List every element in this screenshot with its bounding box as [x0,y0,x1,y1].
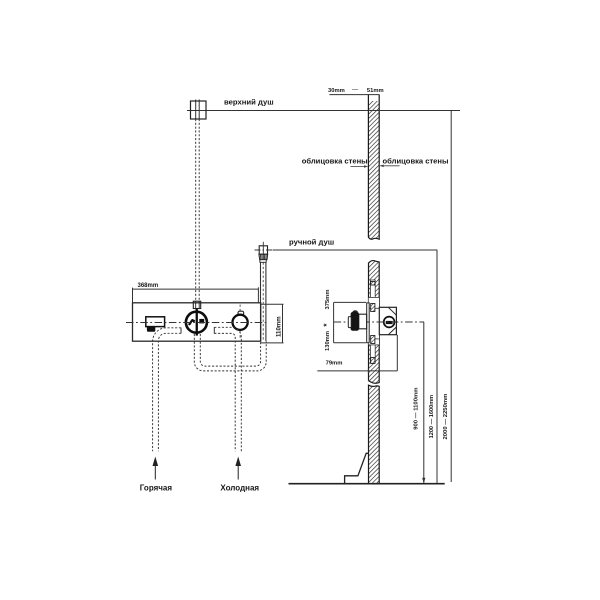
svg-text:130mm: 130mm [325,331,331,351]
svg-text:верхний душ: верхний душ [224,98,274,107]
svg-text:Холодная: Холодная [220,484,259,493]
svg-text:—: — [352,87,359,94]
svg-text:облицовка стены: облицовка стены [302,156,368,165]
svg-text:110mm: 110mm [276,316,283,337]
svg-text:1200 — 1600mm: 1200 — 1600mm [429,395,435,439]
svg-text:375mm: 375mm [325,290,331,310]
svg-text:облицовка стены: облицовка стены [383,156,449,165]
svg-text:900 — 1100mm: 900 — 1100mm [414,388,420,430]
svg-text:ручной душ: ручной душ [289,237,334,246]
svg-text:51mm: 51mm [367,88,384,94]
svg-text:79mm: 79mm [326,360,343,366]
svg-text:30mm: 30mm [328,88,345,94]
svg-text:368mm: 368mm [138,283,159,289]
svg-text:Горячая: Горячая [140,484,173,493]
svg-text:2000 — 2250mm: 2000 — 2250mm [443,394,449,440]
